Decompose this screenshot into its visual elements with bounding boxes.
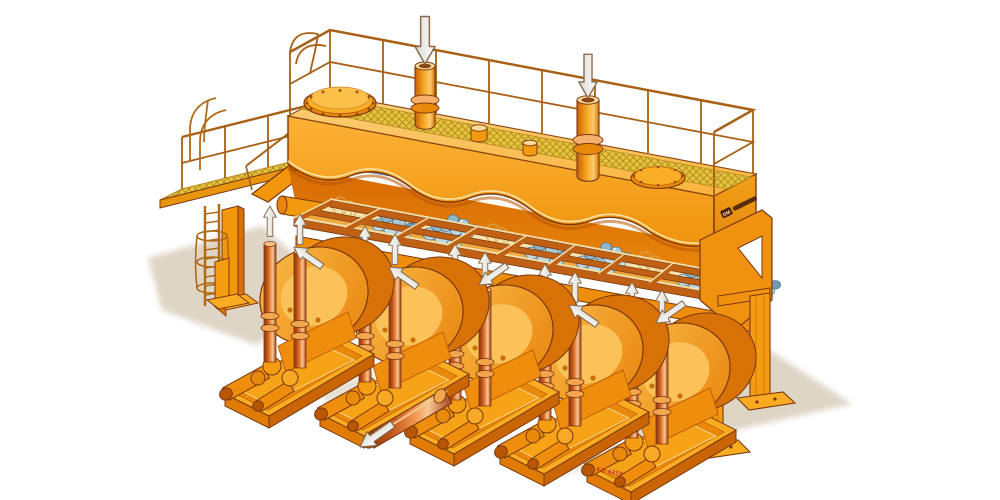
deck-stub-1 [471,125,487,142]
inlet-flow-arrow-1-icon [415,17,435,65]
manhole-1 [304,87,376,117]
inlet-pipe-2 [573,96,603,181]
pump-station-illustration: DM [0,0,1000,500]
illustration-canvas: DM [0,0,1000,500]
inlet-pipe-1 [411,62,439,129]
deck-stub-2 [523,140,537,156]
